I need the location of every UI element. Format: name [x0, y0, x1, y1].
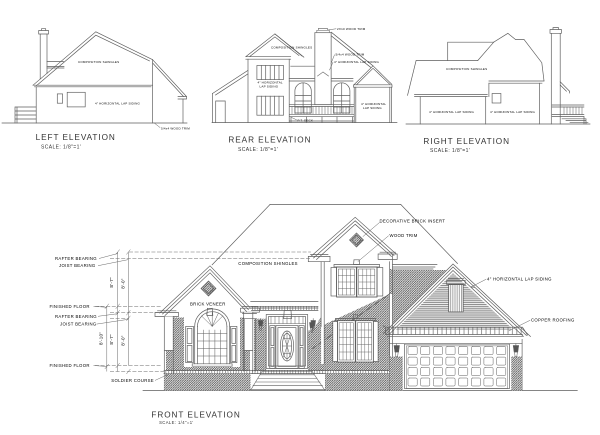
svg-text:SCALE: 1/8"=1': SCALE: 1/8"=1' — [41, 145, 81, 151]
svg-text:COMPOSITION SHINGLES: COMPOSITION SHINGLES — [446, 67, 487, 71]
svg-text:SCALE: 1/8"=1': SCALE: 1/8"=1' — [238, 147, 278, 153]
svg-text:8'-10": 8'-10" — [99, 332, 104, 345]
svg-text:RAFTER BEARING: RAFTER BEARING — [55, 256, 97, 261]
svg-text:4" HORIZONTAL LAP SIDING: 4" HORIZONTAL LAP SIDING — [490, 110, 535, 114]
svg-text:8'-0": 8'-0" — [121, 335, 126, 346]
svg-text:FINISHED FLOOR: FINISHED FLOOR — [50, 304, 90, 309]
svg-text:LEFT ELEVATION: LEFT ELEVATION — [36, 133, 116, 142]
svg-text:5/4x4 WOOD TRIM: 5/4x4 WOOD TRIM — [336, 53, 365, 57]
svg-text:RIGHT ELEVATION: RIGHT ELEVATION — [423, 137, 510, 146]
svg-text:4" HORIZONTAL LAP SIDING: 4" HORIZONTAL LAP SIDING — [429, 110, 474, 114]
svg-text:DECORATIVE BRICK INSERT: DECORATIVE BRICK INSERT — [380, 218, 446, 223]
svg-text:FINISHED FLOOR: FINISHED FLOOR — [50, 363, 90, 368]
svg-text:COMPOSITION SHINGLES: COMPOSITION SHINGLES — [78, 60, 119, 64]
svg-text:REAR ELEVATION: REAR ELEVATION — [228, 136, 311, 145]
svg-text:LAP SIDING: LAP SIDING — [363, 106, 382, 110]
svg-text:4" HORIZONTAL LAP SIDING: 4" HORIZONTAL LAP SIDING — [95, 101, 140, 105]
svg-text:LAP SIDING: LAP SIDING — [260, 85, 279, 89]
svg-text:WOOD TRIM: WOOD TRIM — [390, 233, 418, 238]
svg-text:FRONT ELEVATION: FRONT ELEVATION — [151, 410, 240, 419]
svg-text:SCALE: 1/4"=1': SCALE: 1/4"=1' — [159, 420, 194, 425]
svg-text:JOIST BEARING: JOIST BEARING — [59, 263, 96, 268]
svg-text:COMPOSITION SHINGLES: COMPOSITION SHINGLES — [238, 261, 297, 266]
svg-text:4" HORIZONTAL LAP SIDING: 4" HORIZONTAL LAP SIDING — [487, 276, 552, 281]
svg-text:JOIST BEARING: JOIST BEARING — [60, 322, 97, 327]
svg-text:RAFTER BEARING: RAFTER BEARING — [55, 314, 97, 319]
svg-text:SOLDIER COURSE: SOLDIER COURSE — [111, 378, 154, 383]
svg-text:8'-7": 8'-7" — [109, 334, 114, 345]
svg-text:8'-0": 8'-0" — [121, 278, 126, 289]
svg-text:P.T. DECK: P.T. DECK — [298, 118, 314, 122]
svg-text:8'-7": 8'-7" — [109, 277, 114, 288]
svg-text:5/4x4 WOOD TRIM: 5/4x4 WOOD TRIM — [161, 127, 190, 131]
svg-text:SCALE: 1/8"=1': SCALE: 1/8"=1' — [430, 148, 470, 154]
svg-text:COPPER ROOFING: COPPER ROOFING — [531, 317, 575, 322]
svg-text:4" HORIZONTAL LAP SIDING: 4" HORIZONTAL LAP SIDING — [334, 60, 379, 64]
svg-text:COMPOSITION SHINGLES: COMPOSITION SHINGLES — [271, 45, 312, 49]
svg-text:BRICK VENEER: BRICK VENEER — [190, 302, 226, 307]
svg-text:2X10 WOOD TRIM: 2X10 WOOD TRIM — [337, 27, 366, 31]
